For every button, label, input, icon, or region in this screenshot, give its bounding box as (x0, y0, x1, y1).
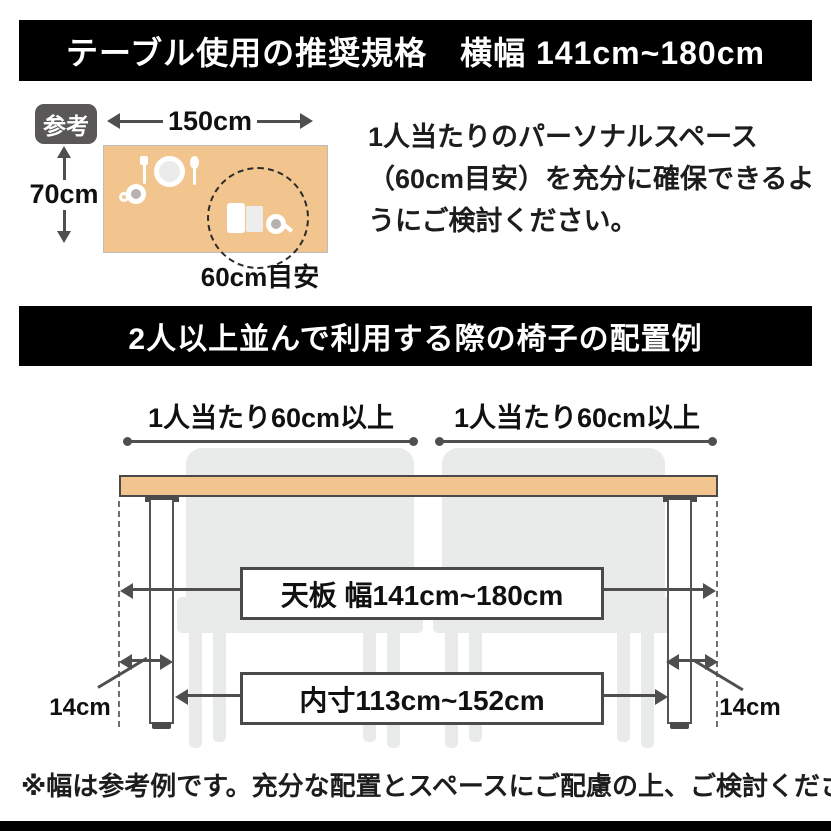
personal-space-circle (207, 167, 309, 269)
dimension-shaft (257, 120, 300, 123)
table-leg-right (667, 500, 692, 724)
dimension-endpoint (409, 437, 418, 446)
tabletop-front-view (119, 475, 718, 497)
tabletop-width-label: 天板 幅141cm~180cm (281, 574, 564, 614)
fork-handle (143, 163, 146, 184)
leg-inset-label-right: 14cm (714, 694, 786, 722)
arrow-left-icon (666, 654, 679, 670)
table-foot-left (152, 722, 171, 729)
per-person-label-left: 1人当たり60cm以上 (125, 396, 417, 435)
dimension-150cm: 150cm (107, 105, 313, 137)
reference-badge: 参考 (35, 104, 97, 144)
arrow-right-icon (655, 689, 668, 705)
dimension-150cm-label: 150cm (168, 106, 252, 137)
banner2-title: 2人以上並んで利用する際の椅子の配置例 (128, 314, 702, 358)
section-banner-recommended-spec: テーブル使用の推奨規格 横幅 141cm~180cm (19, 20, 812, 81)
dimension-shaft (439, 440, 712, 443)
per-person-label-right: 1人当たり60cm以上 (432, 396, 722, 435)
arrow-right-icon (160, 654, 173, 670)
chair-leg (641, 632, 654, 748)
dimension-shaft (604, 694, 656, 697)
dimension-shaft (604, 588, 704, 591)
plate-inner (159, 161, 180, 182)
dimension-shaft (127, 440, 414, 443)
dimension-endpoint (708, 437, 717, 446)
tabletop-width-box: 天板 幅141cm~180cm (240, 567, 604, 620)
chair-leg (189, 632, 202, 748)
dimension-shaft (131, 588, 240, 591)
inner-width-label: 内寸113cm~152cm (299, 679, 544, 719)
arrow-right-icon (300, 113, 313, 129)
footer-note: ※幅は参考例です。充分な配置とスペースにご配慮の上、ご検討ください。 (21, 766, 821, 803)
table-foot-right (670, 722, 689, 729)
dimension-shaft (63, 210, 66, 233)
dimension-shaft (186, 694, 240, 697)
arrow-left-icon (107, 113, 120, 129)
reference-note: 1人当たりのパーソナルスペース（60cm目安）を充分に確保できるようにご検討くだ… (368, 116, 824, 242)
table-edge-guide-right (716, 501, 718, 727)
table-leg-left (149, 500, 174, 724)
bottom-section-strip (0, 821, 831, 831)
leg-inset-label-left: 14cm (44, 694, 116, 722)
dimension-shaft (120, 120, 163, 123)
banner1-title: テーブル使用の推奨規格 横幅 141cm~180cm (66, 28, 765, 74)
reference-badge-label: 参考 (43, 107, 89, 141)
table-spec-infographic: テーブル使用の推奨規格 横幅 141cm~180cm 参考 150cm 70cm… (0, 0, 831, 831)
chair-leg (617, 632, 630, 742)
spoon-handle (193, 166, 196, 185)
inner-width-box: 内寸113cm~152cm (240, 672, 604, 725)
pointer-line-right (693, 659, 743, 691)
section-banner-chair-layout: 2人以上並んで利用する際の椅子の配置例 (19, 306, 812, 366)
dimension-shaft (63, 157, 66, 180)
dimension-70cm-label: 70cm (28, 179, 100, 210)
table-edge-guide-left (118, 501, 120, 727)
arrow-right-icon (703, 583, 716, 599)
arrow-left-icon (120, 583, 133, 599)
arrow-left-icon (175, 689, 188, 705)
chair-leg (213, 632, 226, 742)
arrow-down-icon (57, 231, 71, 243)
cup-inner (131, 189, 141, 199)
